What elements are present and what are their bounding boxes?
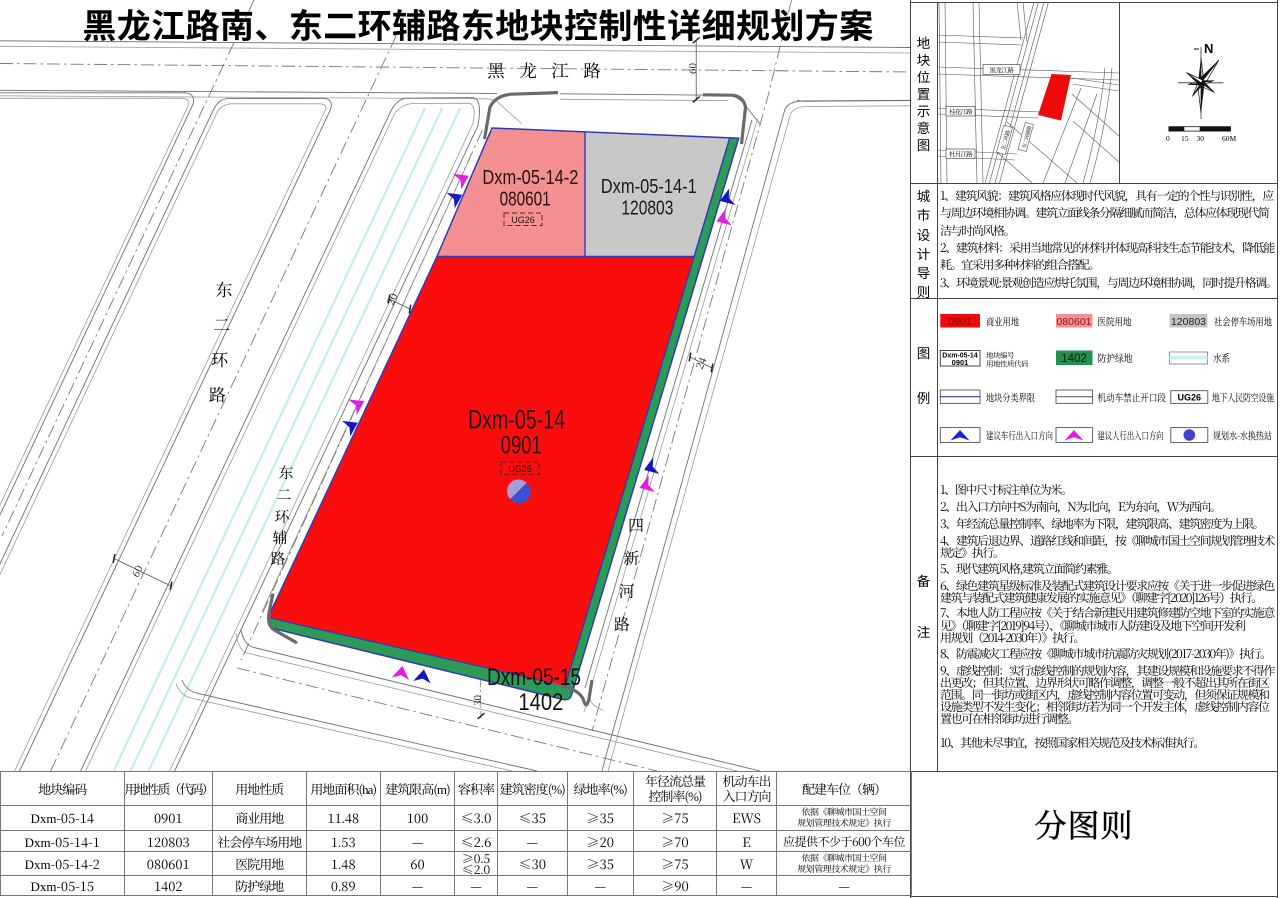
svg-text:Dxm-05-14-2: Dxm-05-14-2 [482, 167, 578, 189]
svg-text:080601: 080601 [500, 189, 551, 211]
svg-text:东二环辅路: 东二环辅路 [1021, 125, 1034, 149]
svg-text:Dxm-05-15: Dxm-05-15 [487, 664, 581, 691]
svg-text:0901: 0901 [501, 432, 542, 460]
svg-text:江: 江 [551, 58, 569, 83]
svg-text:UG26: UG26 [508, 464, 532, 474]
svg-text:新: 新 [623, 546, 639, 569]
svg-text:60: 60 [128, 563, 147, 580]
svg-text:地下人民防空设施: 地下人民防空设施 [1212, 391, 1274, 406]
svg-text:Dxm-05-14-1: Dxm-05-14-1 [601, 176, 697, 198]
svg-text:环: 环 [274, 506, 290, 527]
svg-text:080601: 080601 [1056, 316, 1091, 328]
svg-text:地块分类界限: 地块分类界限 [986, 391, 1035, 406]
svg-text:环: 环 [211, 346, 229, 371]
svg-text:医院用地: 医院用地 [1098, 315, 1132, 330]
svg-text:河: 河 [619, 579, 635, 602]
svg-text:东: 东 [278, 462, 293, 483]
svg-text:120803: 120803 [1171, 316, 1206, 328]
svg-text:路: 路 [583, 58, 601, 83]
svg-text:30: 30 [1197, 134, 1205, 143]
svg-text:辅: 辅 [272, 527, 287, 548]
svg-text:30: 30 [469, 695, 484, 706]
svg-text:N: N [1204, 41, 1213, 56]
svg-text:60M: 60M [1222, 134, 1237, 143]
svg-text:水系: 水系 [1213, 351, 1230, 366]
svg-text:路: 路 [209, 381, 226, 406]
svg-text:机动车禁止开口段: 机动车禁止开口段 [1098, 391, 1167, 406]
svg-text:防护绿地: 防护绿地 [1098, 351, 1133, 366]
svg-text:黑: 黑 [487, 58, 505, 83]
svg-text:二: 二 [276, 484, 291, 505]
svg-text:杜月江路: 杜月江路 [949, 150, 973, 159]
svg-text:黑龙江路: 黑龙江路 [990, 66, 1015, 75]
svg-text:社会停车场用地: 社会停车场用地 [1214, 315, 1272, 330]
svg-text:1402: 1402 [518, 689, 563, 716]
svg-text:建议人行出入口方向: 建议人行出入口方向 [1098, 429, 1164, 444]
svg-text:0901: 0901 [948, 316, 972, 328]
svg-text:用地性质代码: 用地性质代码 [986, 359, 1029, 370]
svg-text:UG26: UG26 [511, 215, 535, 225]
svg-text:桂花江路: 桂花江路 [949, 107, 973, 116]
svg-text:24: 24 [692, 355, 711, 372]
svg-text:路: 路 [614, 612, 630, 635]
svg-text:15: 15 [1181, 134, 1189, 143]
svg-text:龙: 龙 [519, 58, 537, 83]
svg-text:UG26: UG26 [1178, 393, 1202, 403]
svg-text:二: 二 [213, 311, 230, 336]
svg-text:商业用地: 商业用地 [986, 315, 1019, 330]
svg-text:1402: 1402 [1061, 353, 1087, 365]
svg-text:规划水-水换热站: 规划水-水换热站 [1213, 429, 1272, 444]
svg-text:东: 东 [216, 276, 233, 301]
svg-text:建议车行出入口方向: 建议车行出入口方向 [986, 429, 1053, 444]
svg-text:60: 60 [684, 63, 699, 74]
svg-text:0: 0 [1166, 134, 1170, 143]
svg-text:四: 四 [628, 513, 644, 536]
svg-text:东二环路: 东二环路 [999, 128, 1012, 150]
svg-text:120803: 120803 [621, 198, 673, 220]
svg-text:0901: 0901 [952, 358, 969, 367]
svg-text:Dxm-05-14: Dxm-05-14 [468, 405, 565, 435]
